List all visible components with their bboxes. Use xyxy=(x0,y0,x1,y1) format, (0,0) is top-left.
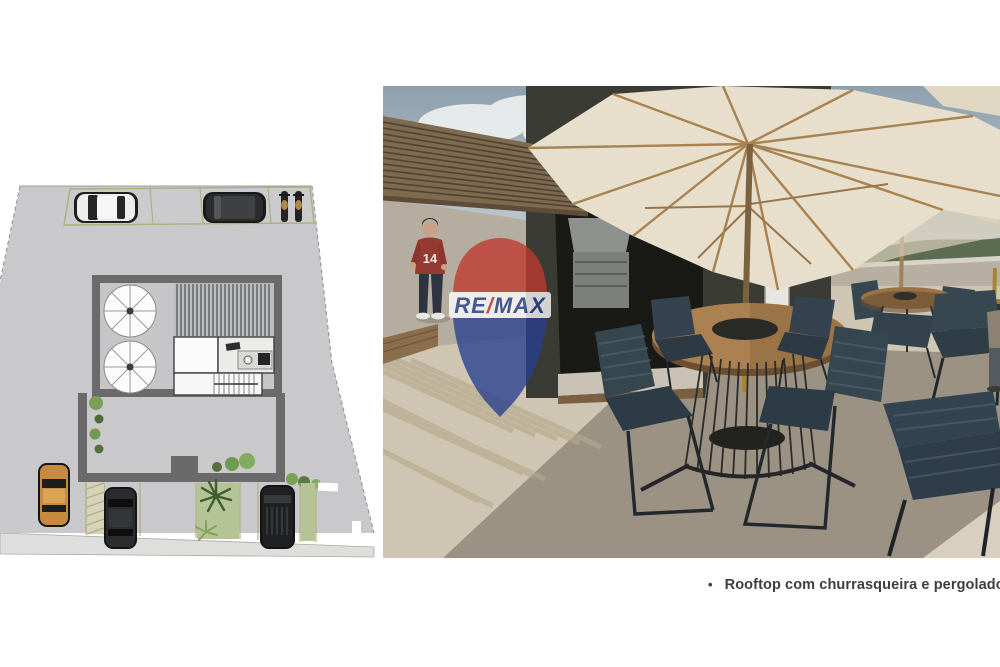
rooftop-render: 14 RE/MAX xyxy=(383,86,1000,558)
plan-parasol-2 xyxy=(104,341,156,393)
rooftop-building xyxy=(92,275,282,397)
dark-car xyxy=(203,192,266,223)
caption-bullet: • xyxy=(708,576,713,594)
floor-plan-image xyxy=(0,183,375,558)
plan-kitchen xyxy=(218,337,274,373)
jersey-number: 14 xyxy=(423,251,438,266)
plan-parasol-1 xyxy=(104,285,156,337)
suv xyxy=(260,485,295,549)
caption-text: Rooftop com churrasqueira e pergolado xyxy=(725,576,1000,594)
listing-montage: 14 RE/MAX • Rooftop com churrasqueira e … xyxy=(0,0,1000,667)
orange-car xyxy=(38,463,70,527)
plan-room xyxy=(174,337,218,373)
site-plan xyxy=(0,183,375,558)
white-car xyxy=(74,192,138,223)
plan-pergola-slats xyxy=(174,283,274,337)
white-mark xyxy=(318,482,338,491)
caption: • Rooftop com churrasqueira e pergolado xyxy=(702,576,1000,594)
grass-strip-2 xyxy=(301,483,315,541)
white-mark-2 xyxy=(352,521,361,537)
dark-car-bottom xyxy=(104,487,137,549)
sidewalk xyxy=(0,533,374,557)
remax-logo-text: RE/MAX xyxy=(454,293,546,318)
hatch-strip xyxy=(87,483,104,534)
grill xyxy=(568,218,633,308)
rooftop-photo: 14 RE/MAX xyxy=(383,86,1000,558)
plan-stairs xyxy=(174,373,262,395)
